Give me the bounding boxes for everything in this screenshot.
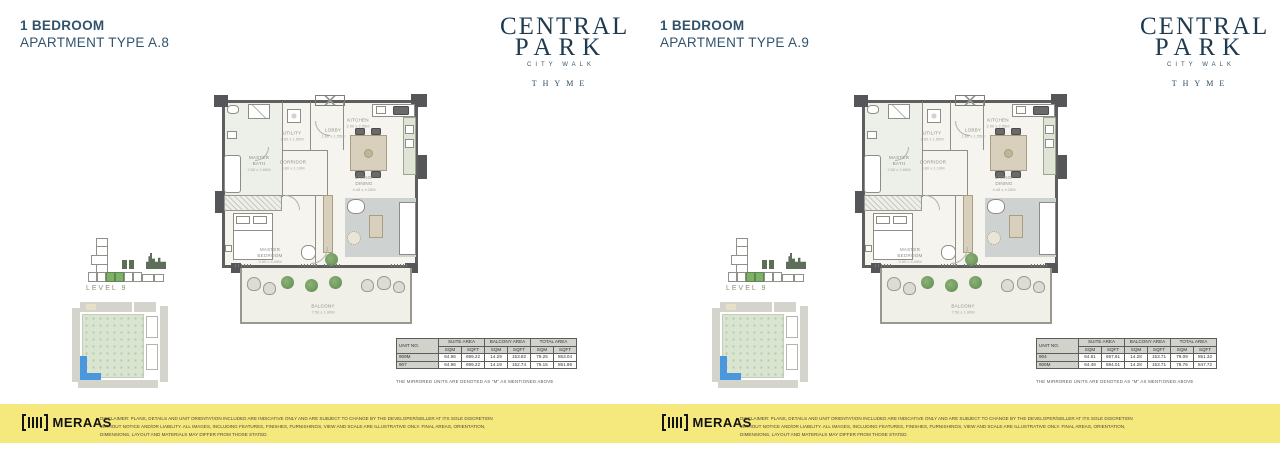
dining-chair xyxy=(371,128,381,135)
siteplan-park xyxy=(722,314,784,378)
col-sqft: SQFT xyxy=(1194,346,1217,354)
appliance xyxy=(405,139,414,148)
logo-word-park: PARK xyxy=(500,37,622,59)
logo-word-park: PARK xyxy=(1140,37,1262,59)
pillow xyxy=(876,216,890,224)
balcony-chair xyxy=(887,277,901,291)
title-bedrooms: 1 BEDROOM xyxy=(20,18,169,33)
pillow xyxy=(253,216,267,224)
kitchen-sink xyxy=(1016,106,1026,114)
table-row: 906M 64.48 694.01 14.28 153.71 78.76 847… xyxy=(1037,361,1217,369)
washer xyxy=(927,109,941,123)
pillow xyxy=(893,216,907,224)
siteplan-highlighted-building xyxy=(80,373,101,380)
bathroom-sink xyxy=(227,131,237,139)
appliance xyxy=(1045,125,1054,134)
coffee-table xyxy=(1009,215,1023,238)
dining-chair xyxy=(995,128,1005,135)
table-row: 907 64.96 699.22 14.19 152.74 79.15 851.… xyxy=(397,361,577,369)
suite-sqm: 64.96 xyxy=(439,354,462,362)
vent-marks xyxy=(875,264,892,267)
wall-column xyxy=(1058,155,1067,179)
footer-bar: MERAAS DISCLAIMER: PLANS, DETAILS AND UN… xyxy=(0,404,1280,443)
balcony-sqft: 153.82 xyxy=(508,354,531,362)
unit-no: 907 xyxy=(397,361,439,369)
total-sqm: 78.76 xyxy=(1171,361,1194,369)
disclaimer-text: DISCLAIMER: PLANS, DETAILS AND UNIT ORIE… xyxy=(740,415,1140,438)
dining-chair xyxy=(355,128,365,135)
balcony-chair xyxy=(361,279,374,292)
wall xyxy=(983,102,984,150)
level-label: LEVEL 9 xyxy=(86,285,127,292)
keyplan-highlight-cell xyxy=(115,272,124,282)
console xyxy=(323,195,333,253)
keyplan-cell xyxy=(88,272,97,282)
balcony-chair xyxy=(1033,281,1045,293)
kitchen-sink xyxy=(376,106,386,114)
skyline-icon xyxy=(146,253,166,269)
siteplan-block xyxy=(72,308,80,382)
wardrobe xyxy=(224,195,282,211)
wall xyxy=(950,102,951,150)
col-sqft: SQFT xyxy=(508,346,531,354)
siteplan-plot xyxy=(786,316,798,338)
pouf xyxy=(987,231,1001,245)
siteplan-block xyxy=(718,380,798,388)
balcony-sqft: 152.74 xyxy=(508,361,531,369)
keyplan-cell xyxy=(133,272,142,282)
skyline-icon xyxy=(786,253,806,269)
suite-sqm: 64.96 xyxy=(439,361,462,369)
masterplan-key-map xyxy=(712,300,808,390)
vent-marks xyxy=(1031,264,1048,267)
stove xyxy=(393,106,409,115)
balcony-plant xyxy=(305,279,318,292)
siteplan-block xyxy=(134,302,156,312)
col-total-area: TOTAL AREA xyxy=(1171,339,1217,347)
meraas-bars-icon xyxy=(22,414,48,431)
sofa xyxy=(1039,202,1056,255)
apartment-sheet-a9: 1 BEDROOM APARTMENT TYPE A.9 CENTRAL PAR… xyxy=(640,0,1280,404)
wall-column xyxy=(215,191,224,213)
central-park-logo: CENTRAL PARK CITY WALK THYME xyxy=(500,16,622,88)
building-silhouette-icon xyxy=(122,260,136,269)
table-footnote: THE MIRRORED UNITS ARE DENOTED AS "M" AS… xyxy=(1036,379,1194,384)
dining-chair xyxy=(995,171,1005,178)
balcony-plant xyxy=(921,276,934,289)
title-apartment-type: APARTMENT TYPE A.8 xyxy=(20,35,169,50)
keyplan-cell xyxy=(728,272,737,282)
sofa xyxy=(399,202,416,255)
page-title: 1 BEDROOM APARTMENT TYPE A.9 xyxy=(660,18,809,50)
total-sqm: 79.15 xyxy=(531,361,554,369)
wall-column xyxy=(214,95,228,107)
central-park-logo: CENTRAL PARK CITY WALK THYME xyxy=(1140,16,1262,88)
balcony-chair xyxy=(247,277,261,291)
vent-marks xyxy=(941,264,958,267)
masterplan-key-map xyxy=(72,300,168,390)
wall xyxy=(343,102,344,150)
keyplan-cell xyxy=(124,272,133,282)
logo-thyme: THYME xyxy=(500,79,622,88)
apartment-sheet-a8: 1 BEDROOM APARTMENT TYPE A.8 CENTRAL PAR… xyxy=(0,0,640,404)
col-sqm: SQM xyxy=(1079,346,1102,354)
dining-chair xyxy=(1011,171,1021,178)
balcony-sqm: 14.29 xyxy=(485,354,508,362)
balcony-chair xyxy=(377,276,391,290)
col-sqft: SQFT xyxy=(1148,346,1171,354)
suite-sqft: 694.01 xyxy=(1102,361,1125,369)
building-key-plan: LEVEL 9 xyxy=(718,238,808,296)
building-silhouette-icon xyxy=(762,260,776,269)
service-shaft xyxy=(955,95,985,106)
meraas-bars-icon xyxy=(662,414,688,431)
balcony-plant xyxy=(281,276,294,289)
vent-marks xyxy=(301,264,318,267)
dining-chair xyxy=(1011,128,1021,135)
logo-city-walk: CITY WALK xyxy=(1140,62,1262,68)
suite-sqft: 697.61 xyxy=(1102,354,1125,362)
keyplan-cell xyxy=(142,274,154,282)
floor-plan: MASTER BATH 2.50 x 1.60M UTILITY 1.60 x … xyxy=(855,95,1067,335)
table-centerpiece xyxy=(1004,149,1013,158)
wall xyxy=(967,150,968,195)
unit-no: 906M xyxy=(1037,361,1079,369)
balcony-sqft: 153.71 xyxy=(1148,361,1171,369)
col-sqft: SQFT xyxy=(462,346,485,354)
total-sqm: 79.25 xyxy=(531,354,554,362)
wall xyxy=(327,150,328,195)
siteplan-block xyxy=(800,306,808,382)
keyplan-cell xyxy=(737,272,746,282)
nightstand xyxy=(225,245,232,252)
level-label: LEVEL 9 xyxy=(726,285,767,292)
col-balcony-area: BALCONY AREA xyxy=(485,339,531,347)
table-row: 909M 64.96 699.22 14.29 153.82 79.25 853… xyxy=(397,354,577,362)
pillow xyxy=(236,216,250,224)
col-unit-no: UNIT NO. xyxy=(1037,339,1079,354)
logo-thyme: THYME xyxy=(1140,79,1262,88)
col-balcony-area: BALCONY AREA xyxy=(1125,339,1171,347)
dining-chair xyxy=(371,171,381,178)
col-sqm: SQM xyxy=(1171,346,1194,354)
area-table: UNIT NO. SUITE AREA BALCONY AREA TOTAL A… xyxy=(396,338,577,369)
area-table: UNIT NO. SUITE AREA BALCONY AREA TOTAL A… xyxy=(1036,338,1217,369)
balcony-chair xyxy=(903,282,916,295)
pouf xyxy=(347,231,361,245)
unit-no: 909M xyxy=(397,354,439,362)
balcony-plant xyxy=(945,279,958,292)
col-sqm: SQM xyxy=(531,346,554,354)
siteplan-plot xyxy=(146,344,158,370)
keyplan-cell xyxy=(782,274,794,282)
balcony-sqm: 14.28 xyxy=(1125,354,1148,362)
dining-chair xyxy=(355,171,365,178)
wall-column xyxy=(854,95,868,107)
bathtub xyxy=(864,155,881,193)
siteplan-plot xyxy=(786,344,798,370)
balcony-sqm: 14.19 xyxy=(485,361,508,369)
appliance xyxy=(1045,139,1054,148)
siteplan-block xyxy=(712,308,720,382)
siteplan-block xyxy=(78,380,158,388)
armchair xyxy=(987,199,1005,214)
total-sqft: 851.32 xyxy=(1194,354,1217,362)
total-sqft: 853.04 xyxy=(554,354,577,362)
disclaimer-text: DISCLAIMER: PLANS, DETAILS AND UNIT ORIE… xyxy=(100,415,500,438)
balcony-sqft: 153.71 xyxy=(1148,354,1171,362)
siteplan-park xyxy=(82,314,144,378)
siteplan-building xyxy=(726,304,736,310)
col-sqm: SQM xyxy=(1125,346,1148,354)
logo-city-walk: CITY WALK xyxy=(500,62,622,68)
appliance xyxy=(405,125,414,134)
toilet xyxy=(867,105,879,114)
footer-left: MERAAS DISCLAIMER: PLANS, DETAILS AND UN… xyxy=(0,404,640,443)
wall xyxy=(310,102,311,150)
wall xyxy=(922,150,967,151)
col-suite-area: SUITE AREA xyxy=(1079,339,1125,347)
keyplan-highlight-cell xyxy=(755,272,764,282)
balcony-chair xyxy=(393,281,405,293)
title-apartment-type: APARTMENT TYPE A.9 xyxy=(660,35,809,50)
title-bedrooms: 1 BEDROOM xyxy=(660,18,809,33)
table-footnote: THE MIRRORED UNITS ARE DENOTED AS "M" AS… xyxy=(396,379,554,384)
siteplan-building xyxy=(86,304,96,310)
col-unit-no: UNIT NO. xyxy=(397,339,439,354)
armchair xyxy=(347,199,365,214)
floor-plan: MASTER BATH 2.50 x 1.60M UTILITY 1.60 x … xyxy=(215,95,427,335)
vent-marks xyxy=(964,264,981,267)
suite-sqm: 64.48 xyxy=(1079,361,1102,369)
suite-sqft: 699.22 xyxy=(462,354,485,362)
wall-column xyxy=(418,155,427,179)
col-total-area: TOTAL AREA xyxy=(531,339,577,347)
siteplan-block xyxy=(160,306,168,382)
siteplan-highlighted-building xyxy=(720,373,741,380)
meraas-logo: MERAAS xyxy=(22,414,112,431)
balcony-chair xyxy=(1017,276,1031,290)
siteplan-plot xyxy=(146,316,158,338)
keyplan-cell xyxy=(773,272,782,282)
col-sqm: SQM xyxy=(439,346,462,354)
wall xyxy=(282,150,327,151)
wall-column xyxy=(855,191,864,213)
duvet-fold xyxy=(233,230,273,231)
suite-sqft: 699.22 xyxy=(462,361,485,369)
siteplan-block xyxy=(774,302,796,312)
stove xyxy=(1033,106,1049,115)
total-sqft: 851.96 xyxy=(554,361,577,369)
suite-sqm: 64.81 xyxy=(1079,354,1102,362)
bathtub xyxy=(224,155,241,193)
shower xyxy=(888,104,910,119)
service-shaft xyxy=(315,95,345,106)
keyplan-highlight-cell xyxy=(746,272,755,282)
keyplan-cell xyxy=(764,272,773,282)
table-centerpiece xyxy=(364,149,373,158)
building-key-plan: LEVEL 9 xyxy=(78,238,168,296)
col-sqm: SQM xyxy=(485,346,508,354)
page-title: 1 BEDROOM APARTMENT TYPE A.8 xyxy=(20,18,169,50)
wardrobe xyxy=(864,195,922,211)
vent-marks xyxy=(324,264,341,267)
balcony-chair xyxy=(1001,279,1014,292)
vent-marks xyxy=(391,264,408,267)
nightstand xyxy=(865,245,872,252)
table-row: 904 64.81 697.61 14.28 153.71 79.09 851.… xyxy=(1037,354,1217,362)
shower xyxy=(248,104,270,119)
toilet xyxy=(227,105,239,114)
col-sqft: SQFT xyxy=(1102,346,1125,354)
balcony-sqm: 14.28 xyxy=(1125,361,1148,369)
keyplan-cell xyxy=(97,272,106,282)
total-sqm: 79.09 xyxy=(1171,354,1194,362)
keyplan-cell xyxy=(794,274,804,282)
col-sqft: SQFT xyxy=(554,346,577,354)
total-sqft: 847.72 xyxy=(1194,361,1217,369)
balcony-plant xyxy=(969,276,982,289)
unit-no: 904 xyxy=(1037,354,1079,362)
console xyxy=(963,195,973,253)
bathroom-sink xyxy=(867,131,877,139)
keyplan-highlight-cell xyxy=(106,272,115,282)
vent-marks xyxy=(235,264,252,267)
coffee-table xyxy=(369,215,383,238)
keyplan-cell xyxy=(154,274,164,282)
washer xyxy=(287,109,301,123)
footer-right: MERAAS DISCLAIMER: PLANS, DETAILS AND UN… xyxy=(640,404,1280,443)
balcony-chair xyxy=(263,282,276,295)
col-suite-area: SUITE AREA xyxy=(439,339,485,347)
balcony-plant xyxy=(329,276,342,289)
duvet-fold xyxy=(873,230,913,231)
meraas-logo: MERAAS xyxy=(662,414,752,431)
